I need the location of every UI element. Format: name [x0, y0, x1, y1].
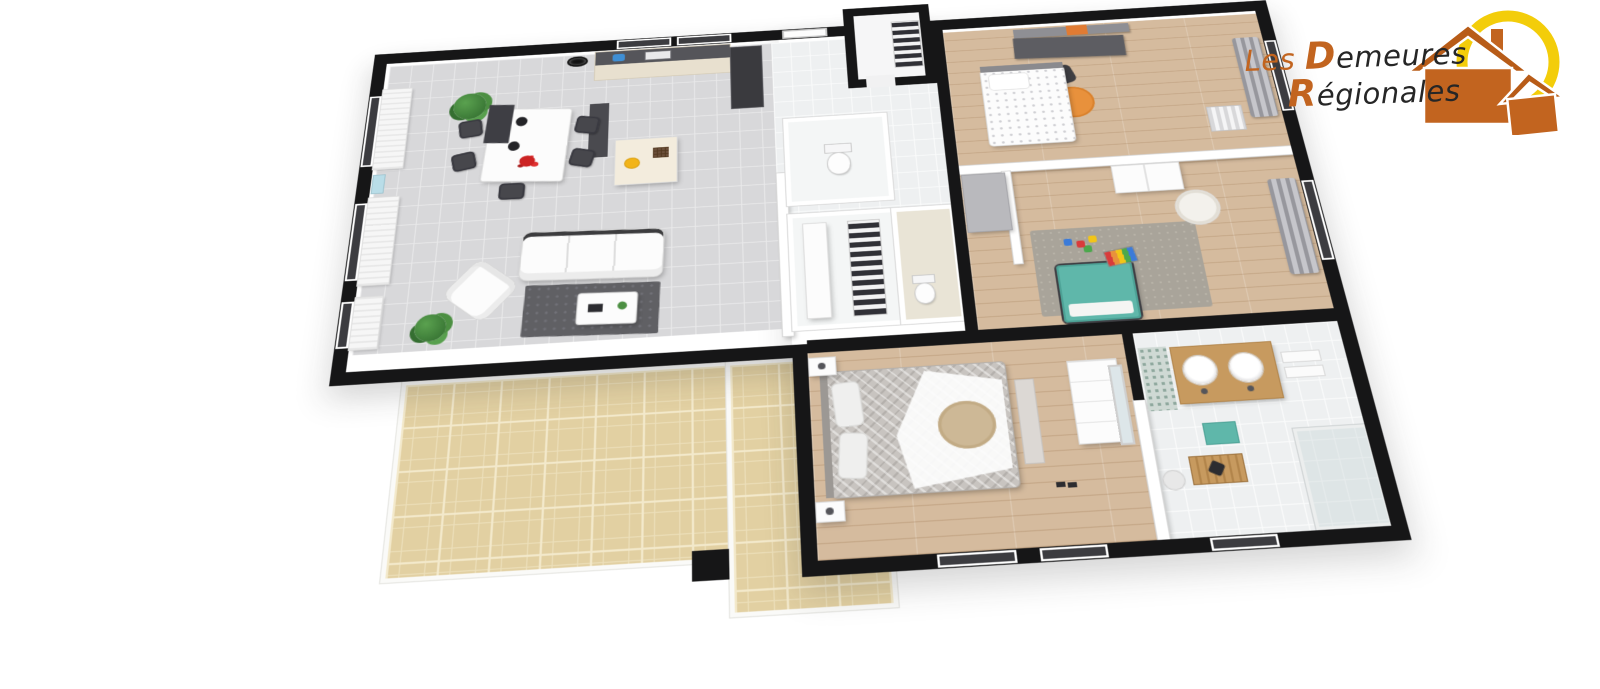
nightstand-1	[809, 357, 836, 376]
bath-sink-2	[1227, 352, 1266, 383]
bedroom1-bed	[980, 66, 1075, 146]
shower-room-toilet-tank	[913, 275, 935, 283]
entry-closet-door-gap	[866, 74, 896, 88]
coffee-table-book	[588, 304, 603, 313]
terrace-left	[380, 362, 738, 584]
bedroom1-radiator	[1207, 106, 1246, 131]
plate-2	[507, 142, 520, 151]
logo-line-2: Régionales	[1287, 69, 1476, 113]
kids-bed-pillow	[1068, 300, 1134, 317]
terrace-step	[692, 549, 730, 582]
hairdryer	[1208, 460, 1226, 477]
floorplan	[313, 0, 1352, 682]
red-flowers	[518, 155, 535, 166]
dining-chair-5	[498, 183, 526, 200]
fruit-bowl-yellow	[625, 158, 639, 168]
waffle-tray	[653, 147, 669, 158]
coffee-table	[576, 292, 637, 324]
bath-faucet-1	[1200, 388, 1208, 394]
master-bed	[826, 362, 1020, 498]
sofa	[519, 228, 664, 280]
wc-toilet-tank	[825, 143, 851, 152]
bath-bench	[1189, 454, 1247, 484]
dining-chair-3	[574, 116, 601, 135]
plate-1	[515, 117, 528, 126]
coffee-table-plant	[617, 301, 627, 309]
shoes-pair	[1056, 482, 1066, 488]
fridge	[730, 45, 764, 109]
table-runner	[483, 105, 514, 143]
nightstand-2	[816, 501, 845, 522]
lamp-2	[826, 507, 834, 515]
bath-teal-basket	[1203, 422, 1239, 444]
entry-closet-shoe-rack	[892, 21, 923, 67]
wall-art-blue	[372, 175, 385, 193]
master-pillow-2	[839, 433, 867, 478]
logo: Les Demeures Régionales	[1245, 10, 1575, 135]
logo-text: Les Demeures Régionales	[1244, 32, 1476, 114]
page: { "logo": { "name": "Les Demeures Région…	[0, 0, 1600, 600]
kids-bed-teal	[1056, 261, 1142, 323]
kids-wardrobe	[1112, 163, 1184, 193]
bedroom1-desk	[1013, 35, 1127, 59]
kitchen-blue-bowl	[612, 54, 624, 62]
hall-gray-cabinet	[962, 173, 1012, 232]
kitchen-sink	[645, 50, 672, 60]
master-pillow-1	[831, 382, 863, 428]
bath-sink-1	[1181, 355, 1220, 386]
kitchen-island	[615, 137, 677, 185]
toy-blocks	[1063, 239, 1072, 246]
bath-vanity	[1170, 342, 1283, 403]
lamp-1	[818, 363, 826, 370]
dining-table	[481, 109, 572, 181]
entry-closet-room	[843, 4, 938, 88]
bedroom1-pillow	[989, 73, 1030, 90]
bath-faucet-2	[1247, 385, 1255, 391]
bedroom1-shelf-orange-box	[1066, 25, 1088, 36]
